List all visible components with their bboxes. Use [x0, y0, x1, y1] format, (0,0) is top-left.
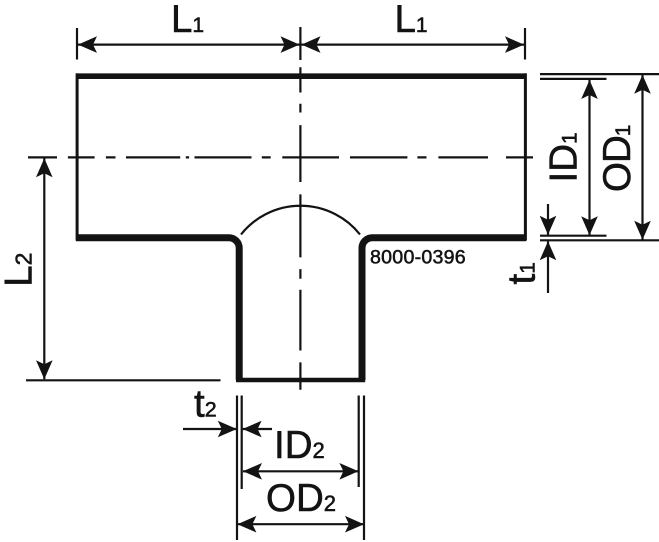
- svg-text:OD2: OD2: [266, 477, 336, 520]
- svg-text:OD1: OD1: [596, 125, 639, 192]
- svg-text:L2: L2: [0, 253, 41, 287]
- svg-text:8000-0396: 8000-0396: [370, 247, 466, 269]
- svg-text:ID1: ID1: [543, 132, 586, 182]
- svg-text:L1: L1: [395, 0, 428, 41]
- svg-text:ID2: ID2: [274, 424, 325, 467]
- svg-text:L1: L1: [171, 0, 204, 41]
- svg-text:t2: t2: [194, 382, 217, 425]
- svg-text:t1: t1: [501, 262, 544, 284]
